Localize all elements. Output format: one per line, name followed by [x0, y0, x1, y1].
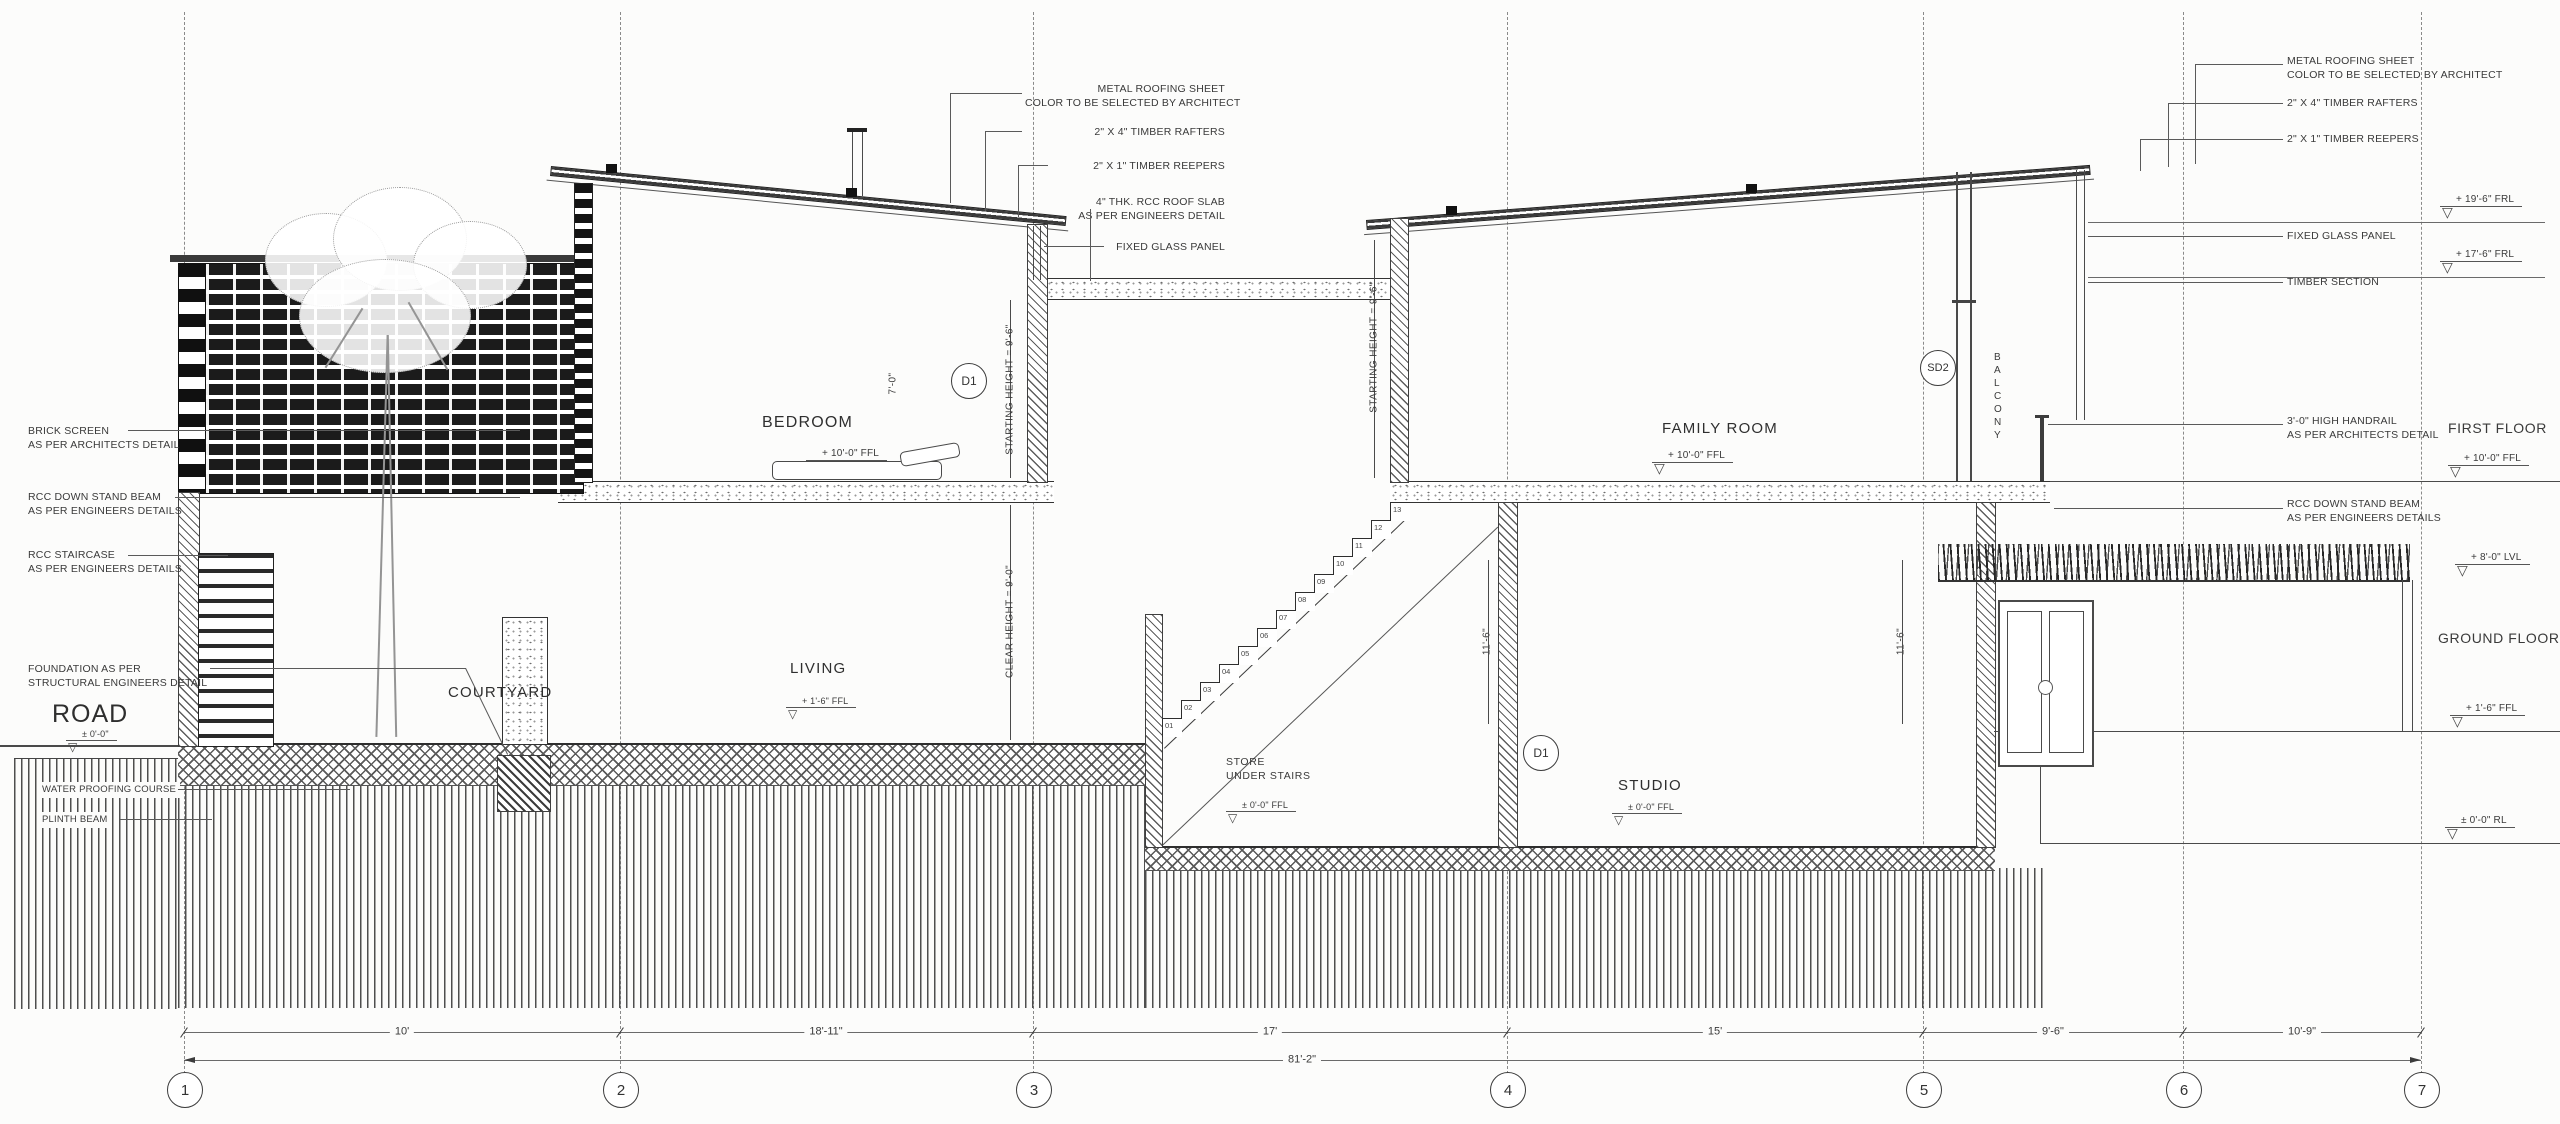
stair-riser-number: 03 [1203, 685, 1211, 694]
leader-line [178, 789, 350, 790]
callout-line: 3'-0" HIGH HANDRAIL [2287, 414, 2439, 428]
level-triangle-icon: ▽ [788, 708, 797, 721]
leader-line [2054, 508, 2283, 509]
grid-number: 6 [2180, 1082, 2188, 1099]
callout-line: METAL ROOFING SHEET [1025, 82, 1225, 96]
balcony-letter: L [1994, 378, 2002, 389]
terrace-level-marker: + 8'-0" LVL ▽ [2455, 552, 2530, 565]
callout-line: AS PER ENGINEERS DETAILS [2287, 511, 2441, 525]
level-triangle-icon: ▽ [2452, 715, 2463, 728]
door-tag-balcony-text: SD2 [1927, 362, 1948, 374]
stair-step: 08 [1295, 592, 1315, 611]
first-floor-slab-family [1390, 481, 2050, 503]
wall-below-brick [178, 492, 200, 747]
callout-downstand-beam-left: RCC DOWN STAND BEAM AS PER ENGINEERS DET… [28, 490, 182, 518]
callout-staircase: RCC STAIRCASE AS PER ENGINEERS DETAILS [28, 548, 182, 576]
stair-step: 07 [1276, 610, 1296, 629]
callout-timber-section: TIMBER SECTION [2287, 275, 2379, 289]
stair-step: 03 [1200, 682, 1220, 701]
terrace-grass [1938, 544, 2410, 582]
dim-line [1902, 560, 1903, 724]
frl-high-marker: + 19'-6" FRL ▽ [2440, 194, 2522, 207]
store-label-line2: UNDER STAIRS [1226, 769, 1311, 783]
grid-number: 7 [2418, 1082, 2426, 1099]
roof-vent-cap [847, 128, 867, 132]
store-label: STORE UNDER STAIRS [1226, 755, 1311, 783]
store-left-wall [1145, 614, 1163, 848]
stair-riser-number: 13 [1393, 505, 1401, 514]
dim-store-height: 11'-6" [1482, 617, 1493, 667]
level-triangle-icon: ▽ [2450, 465, 2461, 478]
roof-vent-post [862, 132, 863, 196]
leader-line [985, 131, 986, 211]
grid-bubble-7: 7 [2404, 1072, 2440, 1108]
callout-waterproofing: WATER PROOFING COURSE [38, 782, 180, 798]
first-floor-slab-bedroom [558, 481, 1054, 503]
door-tag-balcony: SD2 [1920, 350, 1956, 386]
staircase: 01020304050607080910111213 [1162, 502, 1422, 736]
door-tag-bedroom-text: D1 [961, 374, 976, 388]
leader-line [1044, 246, 1104, 247]
callout-roofing-sheet-left: METAL ROOFING SHEET COLOR TO BE SELECTED… [1025, 82, 1225, 110]
balcony-letter: O [1994, 404, 2002, 415]
studio-left-wall [1498, 502, 1518, 848]
purlin-block [1746, 184, 1757, 193]
callout-line: AS PER ENGINEERS DETAILS [28, 562, 182, 576]
family-left-wall [1390, 218, 1409, 483]
balcony-door-frame [1970, 172, 1972, 481]
balcony-handrail [2040, 418, 2044, 481]
level-triangle-icon: ▽ [68, 741, 77, 754]
stair-step: 05 [1238, 646, 1258, 665]
section-drawing: BEDROOM + 10'-0" FFL ▽ D1 STARTING HEIGH… [0, 0, 2560, 1124]
dim-1-2: 10' [390, 1025, 414, 1037]
balcony-letter: Y [1994, 430, 2002, 441]
tree-trunk [387, 335, 397, 737]
callout-line: METAL ROOFING SHEET [2287, 54, 2503, 68]
door-tag-studio: D1 [1523, 735, 1559, 771]
terrace-door-leaf [2007, 611, 2042, 753]
balcony-letter: B [1994, 352, 2002, 363]
starting-height-family: STARTING HEIGHT = 9'-6" [1369, 278, 1380, 418]
road-line [0, 745, 178, 747]
bedroom-level-marker: + 10'-0" FFL ▽ [806, 448, 887, 461]
purlin-block [1446, 206, 1457, 215]
stair-step: 06 [1257, 628, 1277, 647]
flat-roof-slab [1046, 278, 1396, 300]
leader-line [128, 430, 520, 431]
first-floor-line [2050, 481, 2560, 482]
stair-step: 13 [1390, 502, 1410, 521]
callout-line: AS PER ARCHITECTS DETAIL [28, 438, 180, 452]
frl-low-marker: + 17'-6" FRL ▽ [2440, 249, 2522, 262]
stair-riser-number: 05 [1241, 649, 1249, 658]
balcony-handrail-cap [2035, 415, 2049, 418]
earth-hatch-mid [178, 783, 1145, 1008]
leader-line [2168, 103, 2169, 167]
stair-riser-number: 01 [1165, 721, 1173, 730]
leader-line [950, 93, 1022, 94]
stair-riser-number: 02 [1184, 703, 1192, 712]
callout-line: STRUCTURAL ENGINEERS DETAIL [28, 676, 207, 690]
leader-line [2088, 236, 2283, 237]
leader-line [175, 497, 520, 498]
first-floor-label: FIRST FLOOR [2448, 420, 2547, 436]
grid-number: 5 [1920, 1082, 1928, 1099]
callout-line: 4" THK. RCC ROOF SLAB [1025, 195, 1225, 209]
leader-line [120, 819, 212, 820]
dim-total: 81'-2" [1283, 1053, 1321, 1065]
dim-2-3: 18'-11" [804, 1025, 847, 1037]
leader-line [2140, 139, 2141, 171]
callout-reepers-right: 2" X 1" TIMBER REEPERS [2287, 132, 2419, 146]
stair-riser-number: 07 [1279, 613, 1287, 622]
balcony-door-rail [1952, 300, 1976, 303]
stair-step: 02 [1181, 700, 1201, 719]
dim-4-5: 15' [1703, 1025, 1727, 1037]
dim-door-height: 7'-0" [888, 359, 899, 409]
stair-riser-number: 04 [1222, 667, 1230, 676]
store-level-marker: ± 0'-0" FFL ▽ [1226, 800, 1296, 812]
callout-line: FOUNDATION AS PER [28, 662, 207, 676]
stair-riser-number: 12 [1374, 523, 1382, 532]
boundary-wall [2412, 580, 2413, 731]
stair-step: 04 [1219, 664, 1239, 683]
level-triangle-icon: ▽ [2457, 564, 2468, 577]
grid-bubble-4: 4 [1490, 1072, 1526, 1108]
balcony-letter: N [1994, 417, 2002, 428]
balcony-glass-screen [2076, 170, 2077, 420]
balcony-label: B A L C O N Y [1994, 352, 2002, 441]
level-triangle-icon: ▽ [1654, 462, 1665, 475]
ground-floor-marker: + 1'-6" FFL ▽ [2450, 703, 2525, 716]
door-tag-studio-text: D1 [1533, 746, 1548, 760]
dim-line [1488, 560, 1489, 724]
leader-line [2195, 64, 2196, 164]
level-triangle-icon: ▽ [1228, 812, 1237, 825]
ground-slab-studio [1145, 846, 1995, 871]
callout-line: AS PER ENGINEERS DETAIL [1025, 209, 1225, 223]
callout-line: AS PER ARCHITECTS DETAIL [2287, 428, 2439, 442]
frl-high-line [2088, 222, 2545, 223]
leader-line [2168, 103, 2283, 104]
tree [255, 185, 545, 755]
family-room-label: FAMILY ROOM [1662, 420, 1778, 437]
callout-line: AS PER ENGINEERS DETAILS [28, 504, 182, 518]
callout-line: COLOR TO BE SELECTED BY ARCHITECT [1025, 96, 1225, 110]
roof-vent-post [852, 132, 853, 196]
stair-riser-number: 09 [1317, 577, 1325, 586]
living-label: LIVING [790, 660, 846, 677]
leader-line [1018, 165, 1019, 217]
grid-number: 3 [1030, 1082, 1038, 1099]
grid-number: 4 [1504, 1082, 1512, 1099]
dim-6-7: 10'-9" [2283, 1025, 2321, 1037]
callout-reepers-left: 2" X 1" TIMBER REEPERS [1025, 159, 1225, 173]
callout-plinth-beam: PLINTH BEAM [38, 812, 112, 828]
callout-line: RCC DOWN STAND BEAM [2287, 497, 2441, 511]
stair-riser-number: 08 [1298, 595, 1306, 604]
purlin-block [846, 188, 857, 197]
road-level-marker: ± 0'-0" ▽ [66, 729, 117, 741]
leader-line [2048, 424, 2283, 425]
terrace-door [1998, 600, 2094, 767]
courtyard-label: COURTYARD [448, 684, 552, 701]
level-triangle-icon: ▽ [2447, 827, 2458, 840]
callout-line: COLOR TO BE SELECTED BY ARCHITECT [2287, 68, 2503, 82]
leader-line [985, 131, 1022, 132]
callout-rafters-left: 2" X 4" TIMBER RAFTERS [1025, 125, 1225, 139]
studio-level-marker: ± 0'-0" FFL ▽ [1612, 802, 1682, 814]
leader-line [128, 555, 228, 556]
level-triangle-icon: ▽ [1614, 814, 1623, 827]
dim-arrow [2410, 1057, 2421, 1063]
purlin-block [606, 164, 617, 173]
first-floor-marker: + 10'-0" FFL ▽ [2448, 453, 2529, 466]
stair-riser-number: 10 [1336, 559, 1344, 568]
terrace-door-knob [2038, 680, 2053, 695]
tree-trunk [375, 335, 389, 737]
dim-5-6: 9'-6" [2037, 1025, 2069, 1037]
bedroom-roof [550, 166, 1067, 226]
door-tag-bedroom: D1 [951, 363, 987, 399]
grid-number: 2 [617, 1082, 625, 1099]
bedroom-right-wall [1027, 224, 1048, 483]
leader-line [1090, 209, 1091, 281]
grid-bubble-3: 3 [1016, 1072, 1052, 1108]
callout-handrail: 3'-0" HIGH HANDRAIL AS PER ARCHITECTS DE… [2287, 414, 2439, 442]
grid-bubble-1: 1 [167, 1072, 203, 1108]
callout-foundation: FOUNDATION AS PER STRUCTURAL ENGINEERS D… [28, 662, 207, 690]
balcony-glass-screen [2084, 170, 2085, 420]
level-triangle-icon: ▽ [2442, 261, 2453, 274]
foundation-footing [497, 755, 551, 812]
callout-roofing-sheet-right: METAL ROOFING SHEET COLOR TO BE SELECTED… [2287, 54, 2503, 82]
balcony-door-frame [1956, 172, 1958, 481]
studio-label: STUDIO [1618, 777, 1682, 794]
stair-step: 11 [1352, 538, 1372, 557]
stair-step: 10 [1333, 556, 1353, 575]
living-level-marker: + 1'-6" FFL ▽ [786, 696, 856, 708]
grid-number: 1 [181, 1082, 189, 1099]
terrace-door-leaf [2049, 611, 2084, 753]
road-label: ROAD [52, 700, 128, 729]
grid-bubble-5: 5 [1906, 1072, 1942, 1108]
road-line-right [2040, 843, 2560, 844]
store-label-line1: STORE [1226, 755, 1311, 769]
callout-downstand-beam-right: RCC DOWN STAND BEAM AS PER ENGINEERS DET… [2287, 497, 2441, 525]
stair-step: 09 [1314, 574, 1334, 593]
level-triangle-icon: ▽ [2442, 206, 2453, 219]
leader-line [2088, 282, 2283, 283]
leader-line [950, 93, 951, 203]
grid-bubble-2: 2 [603, 1072, 639, 1108]
grid-bubble-6: 6 [2166, 1072, 2202, 1108]
brick-screen-edge [178, 263, 206, 494]
grid-line-6 [2183, 12, 2184, 1074]
leader-line [1018, 165, 1048, 166]
tree-canopy [299, 259, 471, 373]
callout-brick-screen: BRICK SCREEN AS PER ARCHITECTS DETAIL [28, 424, 180, 452]
road-level-marker-right: ± 0'-0" RL ▽ [2445, 815, 2515, 828]
family-room-roof [1366, 165, 2091, 230]
grid-line-7 [2421, 12, 2422, 1074]
callout-roof-slab: 4" THK. RCC ROOF SLAB AS PER ENGINEERS D… [1025, 195, 1225, 223]
leader-line [2195, 64, 2283, 65]
stair-step: 12 [1371, 520, 1391, 539]
dim-3-4: 17' [1258, 1025, 1282, 1037]
dim-arrow [184, 1057, 195, 1063]
dim-row-1 [184, 1032, 2421, 1033]
ground-floor-label: GROUND FLOOR [2438, 630, 2560, 646]
leader-line [210, 668, 466, 669]
stair-riser-number: 06 [1260, 631, 1268, 640]
dim-studio-height: 11'-6" [1896, 617, 1907, 667]
bedroom-left-wall [574, 183, 593, 483]
starting-height-bedroom: STARTING HEIGHT = 9'-6" [1005, 320, 1016, 460]
callout-glass-panel-right: FIXED GLASS PANEL [2287, 229, 2396, 243]
balcony-letter: C [1994, 391, 2002, 402]
balcony-letter: A [1994, 365, 2002, 376]
clear-height-living: CLEAR HEIGHT = 9'-0" [1005, 552, 1016, 692]
callout-rafters-right: 2" X 4" TIMBER RAFTERS [2287, 96, 2418, 110]
callout-line: RCC DOWN STAND BEAM [28, 490, 182, 504]
stair-riser-number: 11 [1355, 541, 1363, 550]
boundary-wall [2402, 580, 2403, 731]
leader-line [2140, 139, 2283, 140]
bedroom-label: BEDROOM [762, 414, 853, 432]
earth-hatch-right [1145, 868, 2045, 1008]
stair-step: 01 [1162, 718, 1182, 737]
family-level-marker: + 10'-0" FFL ▽ [1652, 450, 1733, 463]
